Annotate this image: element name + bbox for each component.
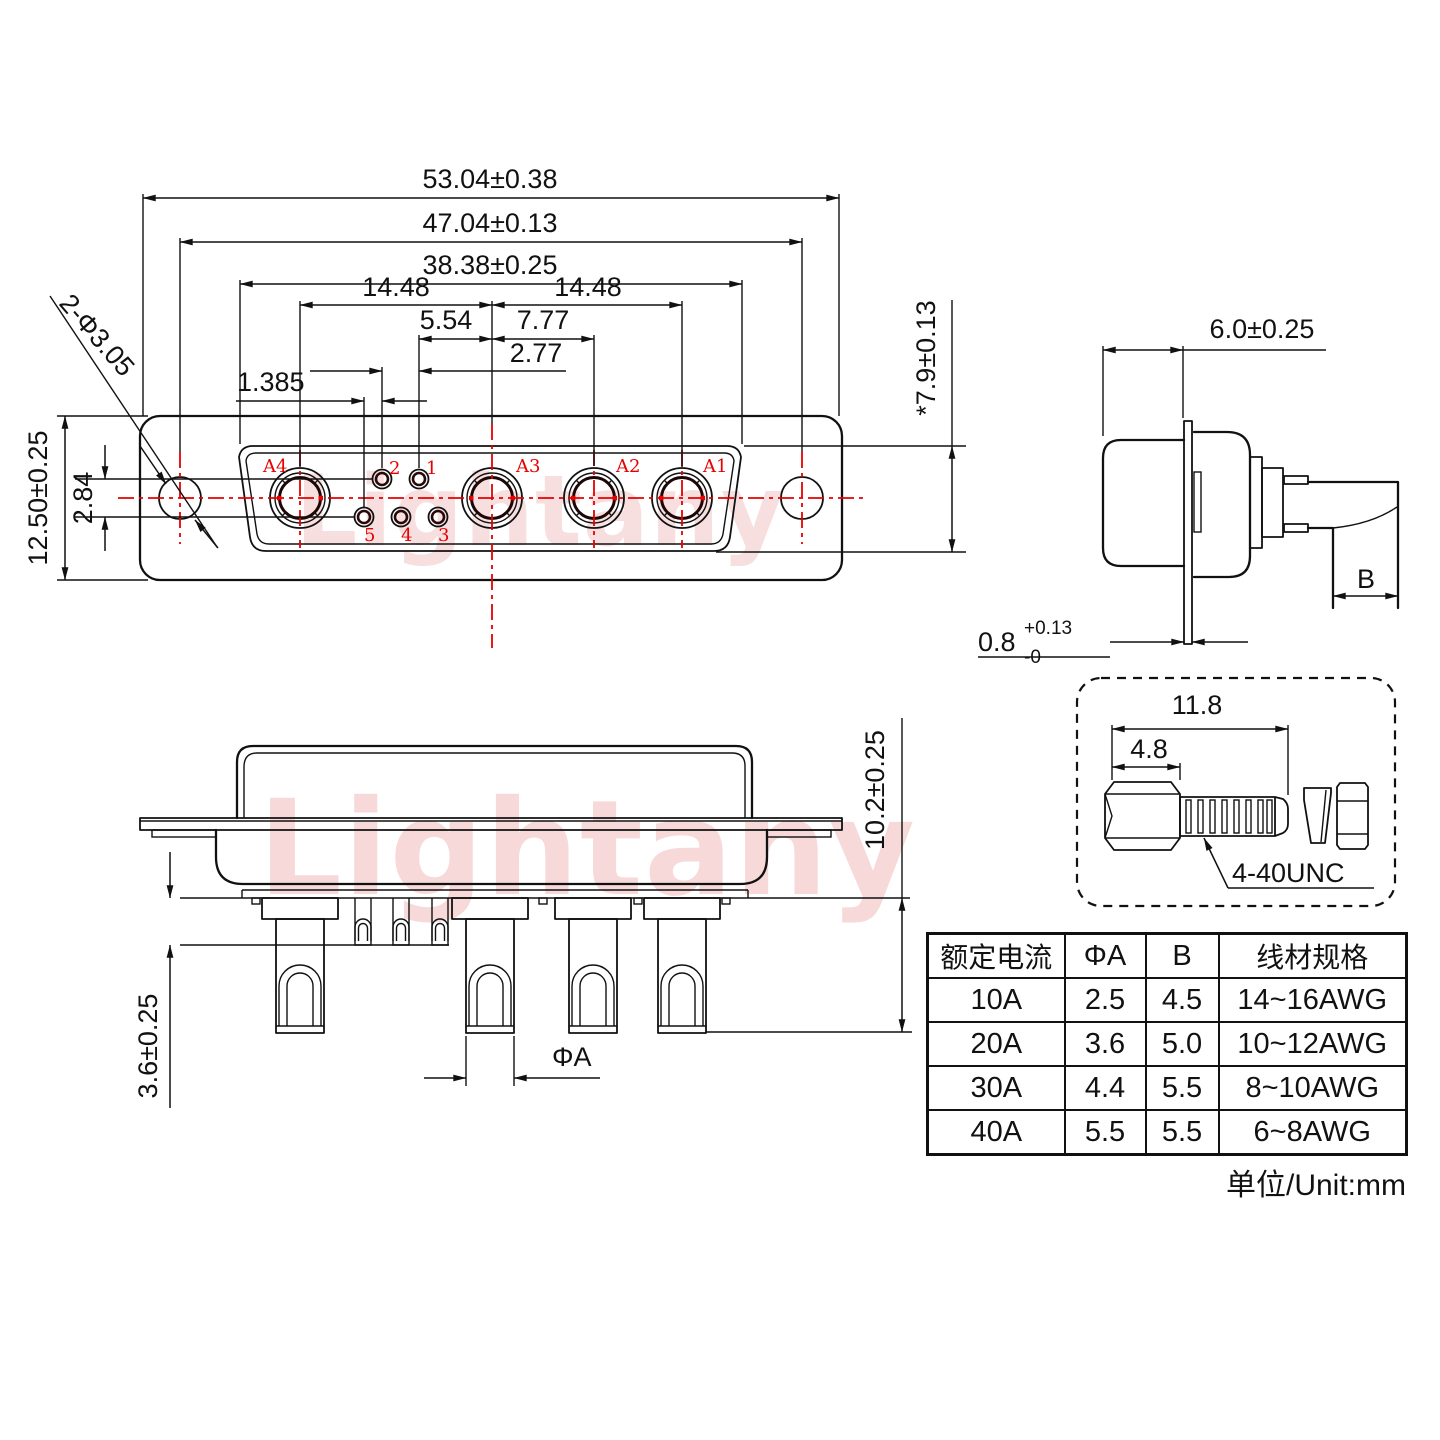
pin-label-5: 5 — [364, 525, 375, 546]
dim-insert-height: *7.9±0.13 — [911, 300, 941, 415]
solder-cup-a3 — [452, 898, 528, 1033]
spec-table: 额定电流 ΦA B 线材规格 10A2.5 4.514~16AWG 20A3.6… — [926, 932, 1408, 1156]
pin-label-4: 4 — [401, 525, 412, 546]
shell-outer — [237, 746, 752, 818]
dim-screw-head: 4.8 — [1130, 734, 1168, 764]
header-rated-current: 额定电流 — [928, 934, 1065, 979]
dim-2-77: 2.77 — [510, 338, 563, 368]
screw-thread-label: 4-40UNC — [1232, 858, 1345, 888]
drawing-page: Lightany Lightany — [0, 0, 1440, 1440]
pin-label-2: 2 — [389, 458, 400, 479]
side-insert — [1194, 472, 1201, 532]
bottom-dimensions: 3.6±0.25 10.2±0.25 ΦA — [133, 718, 902, 1108]
dim-pitch-left: 14.48 — [362, 272, 430, 302]
dim-overall-width: 53.04±0.38 — [423, 164, 558, 194]
dim-7-77: 7.77 — [517, 305, 570, 335]
table-row: 40A5.5 5.56~8AWG — [928, 1110, 1407, 1155]
centerlines — [118, 424, 866, 648]
side-cable — [1308, 482, 1398, 608]
side-backshell — [1194, 432, 1250, 577]
pin-label-a3: A3 — [515, 456, 540, 477]
dim-mount-spacing: 47.04±0.13 — [423, 208, 558, 238]
table-row: 10A2.5 4.514~16AWG — [928, 978, 1407, 1022]
small-pins — [355, 898, 448, 945]
screw-nut — [1337, 783, 1368, 849]
header-wire-gauge: 线材规格 — [1219, 934, 1407, 979]
dim-body-height: 12.50±0.25 — [23, 431, 53, 566]
dim-insert-width: 38.38±0.25 — [423, 250, 558, 280]
solder-cup-a1 — [644, 898, 720, 1033]
side-flange — [1184, 421, 1192, 644]
unit-note: 单位/Unit:mm — [1120, 1160, 1406, 1204]
dim-mount-hole: 2-Φ3.05 — [53, 288, 140, 382]
dim-depth: 6.0±0.25 — [1210, 314, 1315, 344]
side-step1 — [1250, 457, 1262, 548]
flange-tab-left — [152, 830, 216, 837]
dim-pin-len: 3.6±0.25 — [133, 994, 163, 1099]
technical-drawing: A4 A3 A2 A1 2 1 5 4 3 53.04±0.38 47.04±0… — [0, 0, 1440, 1440]
dim-flange-sup: +0.13 — [1024, 618, 1072, 639]
pin-label-a1: A1 — [702, 456, 727, 477]
insulator-body — [216, 830, 767, 884]
screw-detail: 11.8 4.8 4-40UNC — [1077, 678, 1395, 906]
dim-flange-t: 0.8 — [978, 627, 1016, 657]
solder-cup-a2 — [555, 898, 631, 1033]
dim-screw-len: 11.8 — [1172, 690, 1223, 720]
pin-label-a4: A4 — [262, 456, 287, 477]
shell-inner — [244, 753, 745, 818]
front-view: A4 A3 A2 A1 2 1 5 4 3 53.04±0.38 47.04±0… — [23, 164, 966, 648]
bottom-view: 3.6±0.25 10.2±0.25 ΦA — [133, 718, 912, 1108]
table-row: 30A4.4 5.58~10AWG — [928, 1066, 1407, 1110]
solder-cup-a4 — [262, 898, 338, 1033]
side-crimp-top — [1284, 476, 1308, 484]
screw-wedge — [1304, 788, 1331, 843]
header-dia-a: ΦA — [1065, 934, 1146, 979]
screw-thread — [1180, 797, 1288, 836]
header-b: B — [1146, 934, 1219, 979]
side-view: 6.0±0.25 B 0.8 +0.13 -0 — [978, 314, 1398, 668]
side-body — [1103, 440, 1184, 566]
dim-5-54: 5.54 — [420, 305, 473, 335]
dim-wire-b: B — [1357, 564, 1375, 594]
table-row: 20A3.6 5.010~12AWG — [928, 1022, 1407, 1066]
flange-bar — [140, 818, 842, 830]
pin-label-a2: A2 — [615, 456, 640, 477]
screw-dimensions: 11.8 4.8 4-40UNC — [1112, 690, 1374, 888]
side-dimensions: 6.0±0.25 B 0.8 +0.13 -0 — [978, 314, 1398, 668]
pin-label-1: 1 — [426, 458, 437, 479]
dim-pin-dia: ΦA — [552, 1042, 592, 1072]
flange-tab-right — [767, 830, 831, 837]
side-crimp-bottom — [1284, 524, 1308, 532]
table-header-row: 额定电流 ΦA B 线材规格 — [928, 934, 1407, 979]
dim-pitch-right: 14.48 — [554, 272, 622, 302]
side-step2 — [1262, 468, 1283, 537]
pin-label-3: 3 — [438, 525, 449, 546]
dim-1-385: 1.385 — [237, 367, 305, 397]
screw-head — [1105, 782, 1180, 850]
dim-cup-len: 10.2±0.25 — [860, 730, 890, 850]
